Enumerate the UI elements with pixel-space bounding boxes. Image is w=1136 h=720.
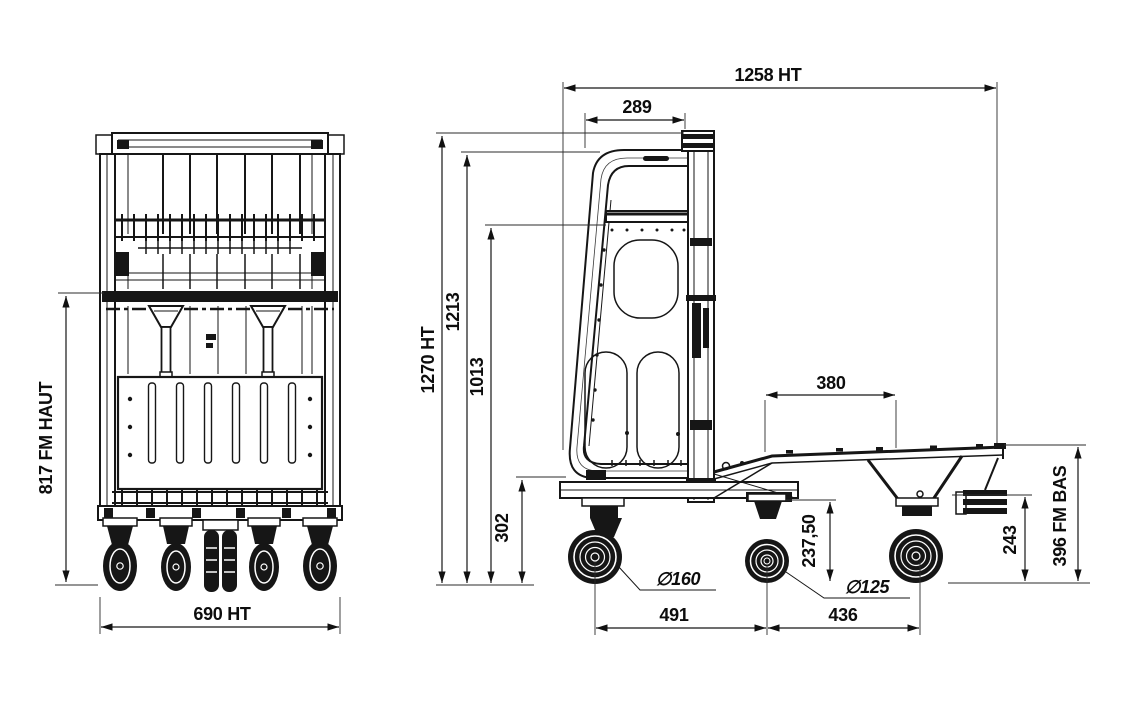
side-front-wheel [568, 498, 624, 584]
dim-380: 380 [765, 373, 896, 452]
dim-diameter-160: ∅160 [618, 566, 716, 590]
dim-label-rear-clearance: 243 [1000, 525, 1020, 554]
dim-label-underframe-height: 237,50 [799, 514, 819, 568]
drawing-canvas: 817 FM HAUT 690 HT [0, 0, 1136, 720]
dim-label-platform-length: 380 [816, 373, 845, 393]
dim-302: 302 [436, 477, 566, 585]
dim-label-handle-height: 1213 [443, 292, 463, 331]
dim-690-ht: 690 HT [100, 597, 340, 634]
dim-label-handle-to-mast: 289 [622, 97, 651, 117]
dim-289: 289 [585, 97, 685, 148]
front-caster-inner-right [248, 518, 280, 591]
front-view: 817 FM HAUT 690 HT [36, 133, 344, 634]
dim-396-fm-bas: 396 FM BAS [1004, 445, 1086, 581]
dim-label-fm-bas: 396 FM BAS [1050, 465, 1070, 566]
dim-label-front-wheelbase: 491 [659, 605, 688, 625]
front-funnel-left [149, 306, 183, 377]
dim-label-overall-height: 1270 HT [418, 326, 438, 393]
front-caster-inner-left [160, 518, 192, 591]
front-twin-center-wheels [203, 520, 238, 592]
side-view: 1258 HT 289 1270 HT 1213 1013 302 [418, 65, 1090, 635]
side-rear-bumper [956, 458, 1007, 514]
front-comb-rail [116, 214, 324, 254]
dim-label-front-wheel-diameter: ∅160 [656, 569, 701, 589]
side-backrest [585, 211, 688, 480]
dim-label-overall-width: 690 HT [193, 604, 251, 624]
dim-label-step-height: 302 [492, 513, 512, 542]
dim-label-rear-wheelbase: 436 [828, 605, 857, 625]
dim-label-backrest-height: 1013 [467, 357, 487, 396]
dim-diameter-125: ∅125 [786, 572, 910, 598]
dim-label-overall-length: 1258 HT [735, 65, 802, 85]
side-rear-wheel [868, 456, 962, 583]
front-base-frame [98, 488, 342, 520]
front-lower-panel [118, 377, 322, 489]
dim-237-50: 237,50 [786, 500, 836, 581]
front-funnel-right [251, 306, 285, 377]
dim-1258-ht: 1258 HT [563, 65, 997, 450]
front-crossbar [102, 291, 338, 309]
dim-label-mid-wheel-diameter: ∅125 [845, 577, 891, 597]
front-upper-slats [128, 154, 312, 234]
dim-label-fm-haut: 817 FM HAUT [36, 381, 56, 494]
front-top-handle [96, 133, 344, 154]
technical-drawing: 817 FM HAUT 690 HT [0, 0, 1136, 720]
dim-817-fm-haut: 817 FM HAUT [36, 293, 104, 585]
front-mid-section [116, 252, 324, 289]
side-mast [682, 131, 716, 502]
front-caster-outer-right [303, 518, 337, 591]
front-caster-outer-left [103, 518, 137, 591]
